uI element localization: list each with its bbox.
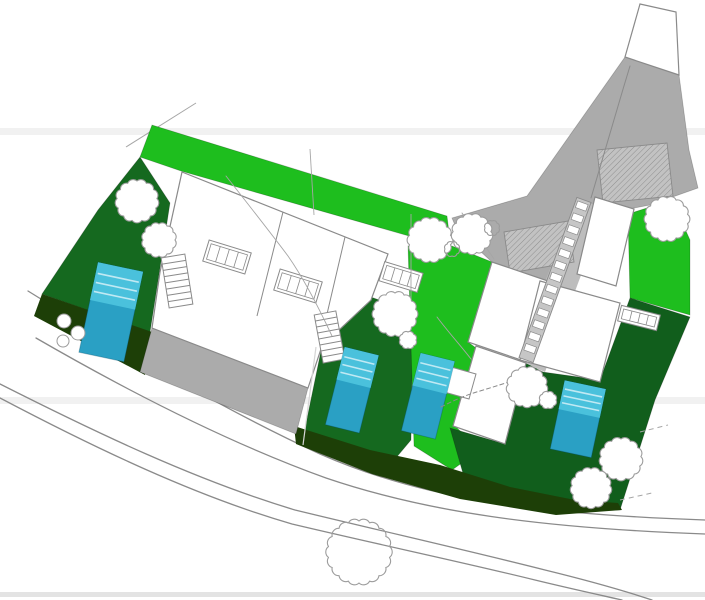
site-plan-image xyxy=(0,0,705,600)
tree-central-lobe xyxy=(539,391,556,408)
tree-road xyxy=(326,519,392,585)
bush-1 xyxy=(57,314,71,328)
tree-west-2 xyxy=(142,223,176,257)
tree-center-1 xyxy=(407,218,453,263)
tree-right-top xyxy=(644,197,690,242)
tree-mid-garden-lobe xyxy=(399,331,416,348)
parking-hatch-upper xyxy=(597,143,673,203)
tree-mid-garden xyxy=(372,292,418,337)
bush-2 xyxy=(71,326,85,340)
site-plan-svg xyxy=(0,0,705,600)
bush-3 xyxy=(57,335,69,347)
